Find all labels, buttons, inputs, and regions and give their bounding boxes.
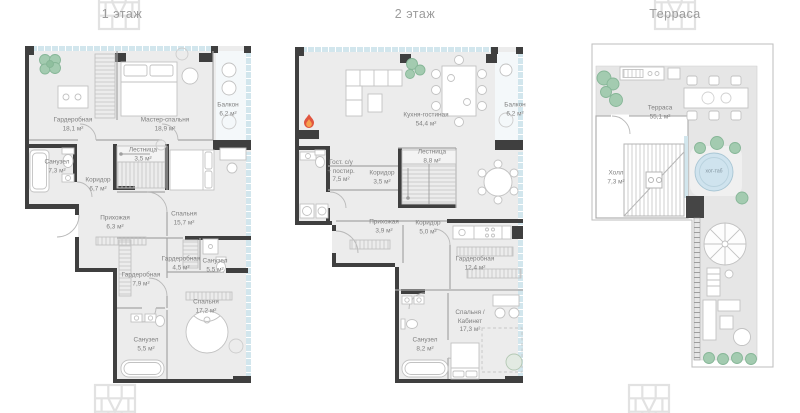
room-label-wc-7-3: Санузел7,3 м² <box>45 158 70 175</box>
master-bed <box>121 62 177 116</box>
dryer-machine <box>316 204 328 218</box>
room-label-stairs1: Лестница3,5 м² <box>129 146 157 163</box>
bathtub <box>121 360 164 377</box>
floorplan-terrace-drawing <box>590 40 785 370</box>
trellis-strip <box>694 218 700 360</box>
dresser <box>58 86 88 108</box>
room-label-korridor1: Коридор6,7 м² <box>85 176 110 193</box>
balcony-pouf <box>222 63 236 77</box>
terrace-title: Терраса <box>641 7 709 21</box>
plant-icon <box>40 55 61 75</box>
armchair <box>182 68 198 84</box>
kitchenette-counter <box>453 226 511 239</box>
room-label-balcony1: Балкон6,2 м² <box>217 101 238 118</box>
room-label-gard-4-5: Гардеробная4,5 м² <box>162 255 201 272</box>
room-label-stairs2: Лестница8,8 м² <box>418 148 446 165</box>
balcony-pouf <box>222 81 236 95</box>
desk-chair <box>227 163 237 173</box>
hot-tub-label: хот-таб <box>706 169 723 176</box>
room-label-master: Мастер-спальня18,9 м² <box>141 116 190 133</box>
shower <box>203 239 218 254</box>
sink <box>300 152 316 160</box>
hallway-bench <box>350 240 390 249</box>
developer-logo-watermark <box>627 383 671 413</box>
chimney-block <box>686 196 704 218</box>
room-label-bed-15-7: Спальня15,7 м² <box>171 210 197 227</box>
room-label-korridor-5-0: Коридор5,0 м² <box>415 219 440 236</box>
sink <box>131 314 142 322</box>
room-label-wc-8-2: Санузел8,2 м² <box>413 336 438 353</box>
round-lounge-chair <box>734 329 751 346</box>
hall-room <box>596 115 688 219</box>
toilet <box>156 316 165 327</box>
room-label-terrace: Терраса55,1 м² <box>648 104 673 121</box>
outdoor-dining-table <box>684 76 748 120</box>
room-label-wc-5-5b: Санузел5,5 м² <box>134 336 159 353</box>
room-label-gard-7-9: Гардеробная7,9 м² <box>122 271 161 288</box>
room-label-gard-12-4: Гардеробная12,4 м² <box>456 255 495 272</box>
room-label-wc-5-5a: Санузел5,5 м² <box>203 257 228 274</box>
round-bed <box>186 311 228 353</box>
room-label-balcony2: Балкон6,2 м² <box>504 101 525 118</box>
bbq-grill <box>620 67 680 80</box>
floor1-title: 1 этаж <box>90 7 154 21</box>
floorplan-floor1: Гардеробная18,1 м² Мастер-спальня18,9 м²… <box>20 40 255 390</box>
room-label-kitchen-living: Кухня-гостиная54,4 м² <box>403 111 448 128</box>
sunbed <box>707 268 720 296</box>
room-label-korridor-3-5: Коридор3,5 м² <box>369 169 394 186</box>
washing-machine <box>300 204 314 218</box>
toilet <box>315 150 325 168</box>
staircase-icon <box>624 144 684 216</box>
sink <box>145 314 156 322</box>
toilet <box>401 319 418 329</box>
wardrobe-shelving <box>95 54 115 118</box>
sink <box>414 296 424 304</box>
floorplan-floor2: Кухня-гостиная54,4 м² Балкон6,2 м² Гост.… <box>290 40 540 390</box>
desk <box>220 148 246 160</box>
room-label-bed-17-2: Спальня17,2 м² <box>193 298 219 315</box>
room-label-gard-18-1: Гардеробная18,1 м² <box>54 116 93 133</box>
sink <box>402 296 412 304</box>
bed <box>170 150 214 190</box>
room-label-hall: Холл7,3 м² <box>607 169 624 186</box>
umbrella-icon <box>704 223 746 265</box>
bathtub <box>402 360 448 377</box>
room-label-entry2: Прихожая3,9 м² <box>369 218 399 235</box>
balcony-pouf <box>500 64 512 76</box>
floorplan-page: 1 этаж 2 этаж Терраса <box>0 0 800 413</box>
room-label-bed-office: Спальня /Кабинет17,3 м² <box>455 309 484 335</box>
floorplan-terrace: Терраса55,1 м² Холл7,3 м² хот-таб <box>590 40 785 370</box>
floor2-title: 2 этаж <box>383 7 447 21</box>
bed <box>451 343 479 379</box>
room-label-guest-wc: Гост. с/у+ постир.7,5 м² <box>327 159 355 185</box>
side-table <box>725 270 733 278</box>
decor-plant <box>506 354 522 370</box>
room-label-entry1: Прихожая6,3 м² <box>100 214 130 231</box>
